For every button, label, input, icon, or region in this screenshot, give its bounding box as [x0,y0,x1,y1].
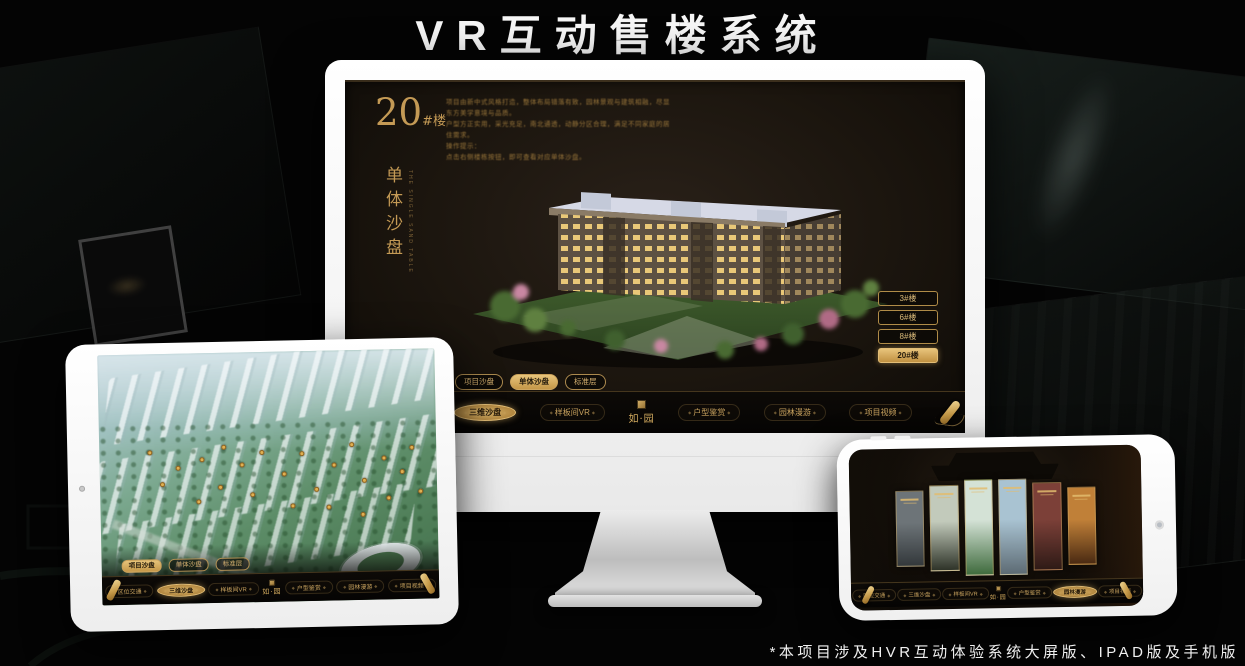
monitor-stand [555,510,755,600]
tab-项目沙盘[interactable]: 项目沙盘 [455,374,503,390]
menu-item-三维沙盘[interactable]: 三维沙盘 [157,583,205,597]
phone-camera-icon [1155,520,1164,529]
menu-item-园林漫游[interactable]: 园林漫游 [1053,585,1097,598]
brand-logo-text: 如·园 [990,592,1007,601]
building-marker [147,450,152,455]
panel-caption [1040,494,1053,495]
brand-logo: 如·园 [262,579,282,596]
building-marker [332,462,337,467]
building-marker [221,445,226,450]
panel-caption [935,492,953,494]
promo-canvas: VR互动售楼系统 20#楼 单体沙盘 THE SINGLE SAND TABLE… [0,0,1245,666]
menu-item-园林漫游[interactable]: 园林漫游 [336,579,384,593]
description-line: 项目由新中式风格打造，整体布局错落有致，园林景观与建筑相融，尽显东方美学意境与品… [446,97,671,119]
brand-seal-icon [996,586,1001,591]
building-marker [409,445,414,450]
tab-单体沙盘[interactable]: 单体沙盘 [169,558,209,572]
brand-logo: 如·园 [628,400,654,425]
building-marker [326,505,331,510]
floor-button-group: 3#楼6#楼8#楼20#楼 [878,291,938,363]
panel-caption [969,487,987,489]
building-3d-model[interactable] [463,156,893,371]
gallery-panel-5[interactable] [1033,482,1063,570]
building-marker [250,492,255,497]
background-plaque [78,225,188,346]
description-line: 操作提示： [446,141,671,152]
building-marker [218,485,223,490]
screen-top-highlight [345,80,965,82]
tablet-screen-aerial-view[interactable]: 项目沙盘单体沙盘标准层 区位交通三维沙盘样板间VR如·园户型鉴赏园林漫游项目视频 [97,348,439,605]
background-river [1016,63,1132,251]
description-line: 户型方正实用，采光充足，南北通透，动静分区合理，满足不同家庭的居住需求。 [446,119,671,141]
brand-logo: 如·园 [990,586,1007,601]
page-title: VR互动售楼系统 [0,2,1245,63]
building-marker [259,450,264,455]
menu-item-样板间VR[interactable]: 样板间VR [208,582,259,596]
menu-item-园林漫游[interactable]: 园林漫游 [764,404,826,421]
plaque-glow [106,273,149,299]
floor-button-6#楼[interactable]: 6#楼 [878,310,938,325]
block-description: 项目由新中式风格打造，整体布局错落有致，园林景观与建筑相融，尽显东方美学意境与品… [446,97,671,163]
menu-item-户型鉴赏[interactable]: 户型鉴赏 [285,580,333,594]
panel-caption [937,496,950,497]
building-marker [362,478,367,483]
building-marker [386,495,391,500]
building-marker [349,442,354,447]
panel-caption [1003,486,1021,488]
building-marker [400,469,405,474]
floor-button-3#楼[interactable]: 3#楼 [878,291,938,306]
block-number: 20 [375,91,422,134]
brand-logo-text: 如·园 [628,410,654,425]
building-marker [240,462,245,467]
gallery-panel-6[interactable] [1067,486,1097,564]
panel-caption [1075,498,1088,499]
phone-volume-button [870,436,886,440]
gallery-panel-1[interactable] [895,490,925,566]
menu-item-户型鉴赏[interactable]: 户型鉴赏 [678,404,740,421]
menu-item-区位交通[interactable]: 区位交通 [852,589,896,602]
building-marker [290,503,295,508]
panel-caption [900,498,918,500]
tab-标准层[interactable]: 标准层 [565,374,606,390]
floor-button-8#楼[interactable]: 8#楼 [878,329,938,344]
building-marker [176,466,181,471]
phone-frame: 区位交通三维沙盘样板间VR如·园户型鉴赏园林漫游项目视频 [836,434,1177,621]
building-marker [199,457,204,462]
scroll-brush-icon[interactable] [935,399,965,427]
tab-标准层[interactable]: 标准层 [216,557,250,571]
menu-item-样板间VR[interactable]: 样板间VR [540,404,605,421]
block-title: 20#楼 [375,94,446,132]
floor-button-20#楼[interactable]: 20#楼 [878,348,938,363]
building-marker [381,455,386,460]
phone-volume-button [894,436,910,440]
desktop-view-tabs: 项目沙盘单体沙盘标准层 [455,374,606,390]
tablet-frame: 项目沙盘单体沙盘标准层 区位交通三维沙盘样板间VR如·园户型鉴赏园林漫游项目视频 [65,337,459,632]
gallery-panel-3[interactable] [964,479,994,575]
menu-item-三维沙盘[interactable]: 三维沙盘 [897,588,941,601]
tab-项目沙盘[interactable]: 项目沙盘 [122,559,162,573]
phone-menu-bar: 区位交通三维沙盘样板间VR如·园户型鉴赏园林漫游项目视频 [851,578,1143,608]
tablet-camera-icon [79,485,85,491]
footnote-text: *本项目涉及HVR互动体验系统大屏版、IPAD版及手机版 [770,641,1239,662]
menu-item-项目视频[interactable]: 项目视频 [849,404,911,421]
brand-seal-icon [637,400,646,409]
block-subtitle-vertical: 单体沙盘 [380,166,405,262]
gallery-panel-4[interactable] [998,478,1028,574]
menu-item-样板间VR[interactable]: 样板间VR [942,587,988,600]
block-suffix: #楼 [422,114,446,129]
tab-单体沙盘[interactable]: 单体沙盘 [510,374,558,390]
block-subtitle-english: THE SINGLE SAND TABLE [407,170,413,274]
panel-caption [1006,490,1019,491]
building-marker [160,482,165,487]
panel-caption [972,491,985,492]
phone-screen-gallery-view[interactable]: 区位交通三维沙盘样板间VR如·园户型鉴赏园林漫游项目视频 [849,445,1144,611]
brand-seal-icon [269,579,275,585]
brand-logo-text: 如·园 [262,586,281,596]
scroll-swoosh [934,411,965,428]
building-marker [196,499,201,504]
tablet-menu-bar: 区位交通三维沙盘样板间VR如·园户型鉴赏园林漫游项目视频 [102,569,440,605]
panorama-panel-gallery [895,475,1097,577]
tablet-view-tabs: 项目沙盘单体沙盘标准层 [122,557,250,573]
monitor-stand-base [548,595,762,607]
panel-caption [903,502,916,503]
building-marker [418,489,423,494]
menu-item-三维沙盘[interactable]: 三维沙盘 [454,404,516,421]
building-marker [314,487,319,492]
building-marker [282,471,287,476]
building-marker [361,512,366,517]
menu-item-户型鉴赏[interactable]: 户型鉴赏 [1008,586,1052,599]
building-marker [299,451,304,456]
gallery-panel-2[interactable] [930,484,960,570]
panel-caption [1038,490,1056,492]
panel-caption [1072,494,1090,496]
